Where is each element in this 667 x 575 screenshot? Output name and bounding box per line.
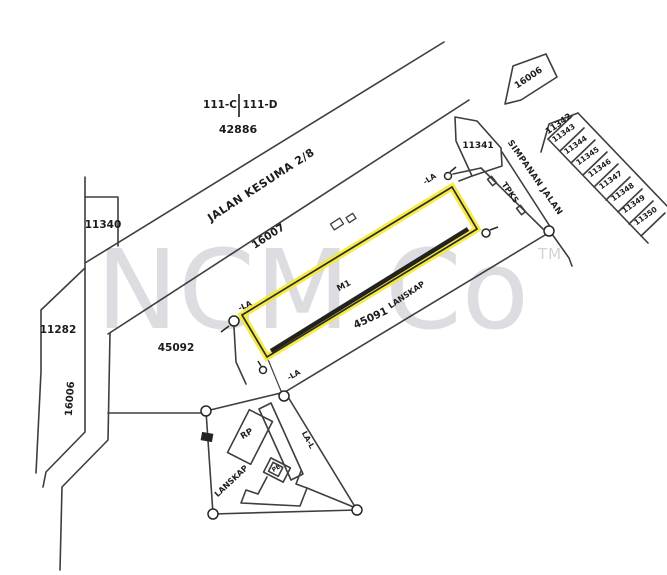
la-mark-north-label: -LA — [421, 171, 438, 186]
cadastral-map: NCM Co TM — [0, 0, 667, 575]
road-lot-16006-west: 16006 — [64, 381, 77, 417]
plot-45092-label: 45092 — [158, 342, 195, 354]
survey-marker-icon — [201, 406, 211, 416]
buildings-south — [228, 403, 356, 508]
tpks-strip-label: TPKS — [500, 180, 521, 204]
rp-building-label: RP — [239, 427, 255, 442]
watermark-tm: TM — [537, 245, 562, 263]
watermark: NCM Co TM — [96, 226, 562, 354]
road-name-simpanan-jalan: SIMPANAN JALAN — [505, 138, 564, 217]
la-mark-south-label: -LA — [286, 367, 303, 382]
survey-marker-icon — [445, 173, 452, 180]
survey-marker-icon — [482, 229, 490, 237]
survey-marker-icon — [352, 505, 362, 515]
boundary-stone-icon — [201, 433, 212, 442]
parcel-left-label: 111-C — [203, 99, 237, 111]
road-name-jalan-kesuma: JALAN KESUMA 2/8 — [204, 146, 316, 225]
survey-marker-icon — [229, 316, 239, 326]
survey-marker-icon — [208, 509, 218, 519]
corner-tail-line — [267, 357, 281, 391]
survey-marker-icon — [260, 367, 267, 374]
plot-11341-label: 11341 — [462, 141, 493, 151]
plot-11340-label: 11340 — [85, 219, 122, 231]
parcel-number-label: 42886 — [219, 123, 258, 136]
survey-plan-drawing: NCM Co TM — [0, 0, 667, 575]
watermark-brand: NCM Co — [96, 226, 529, 354]
plot-11282-label: 11282 — [40, 324, 77, 336]
parcel-right-label: 111-D — [243, 99, 278, 111]
survey-marker-icon — [279, 391, 289, 401]
la-mark-edge-label: LA-L — [300, 430, 317, 451]
survey-marker-icon — [544, 226, 554, 236]
